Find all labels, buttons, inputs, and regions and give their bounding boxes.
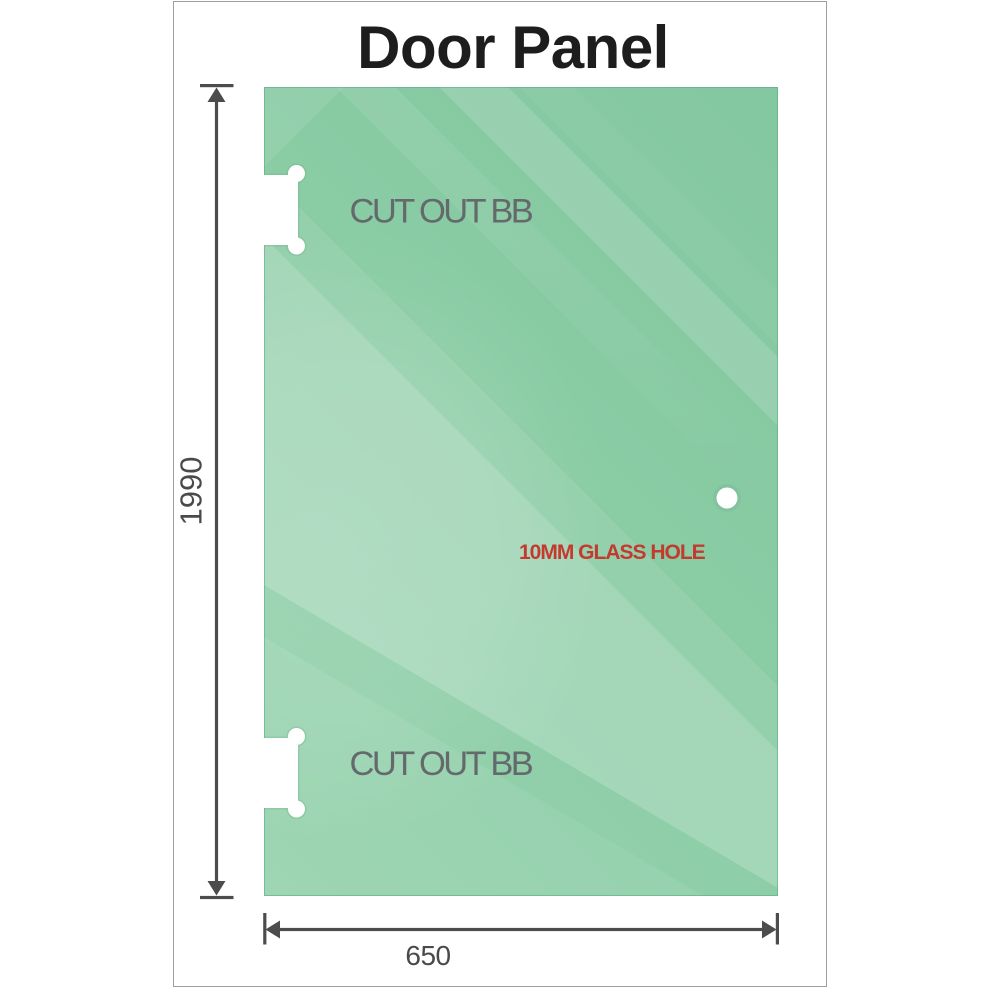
svg-text:CUT OUT BB: CUT OUT BB: [350, 193, 533, 231]
svg-text:Door Panel: Door Panel: [357, 14, 669, 81]
svg-text:10MM GLASS HOLE: 10MM GLASS HOLE: [519, 541, 706, 564]
svg-text:CUT OUT BB: CUT OUT BB: [350, 745, 533, 783]
svg-text:1990: 1990: [174, 457, 209, 526]
svg-text:650: 650: [405, 940, 450, 971]
